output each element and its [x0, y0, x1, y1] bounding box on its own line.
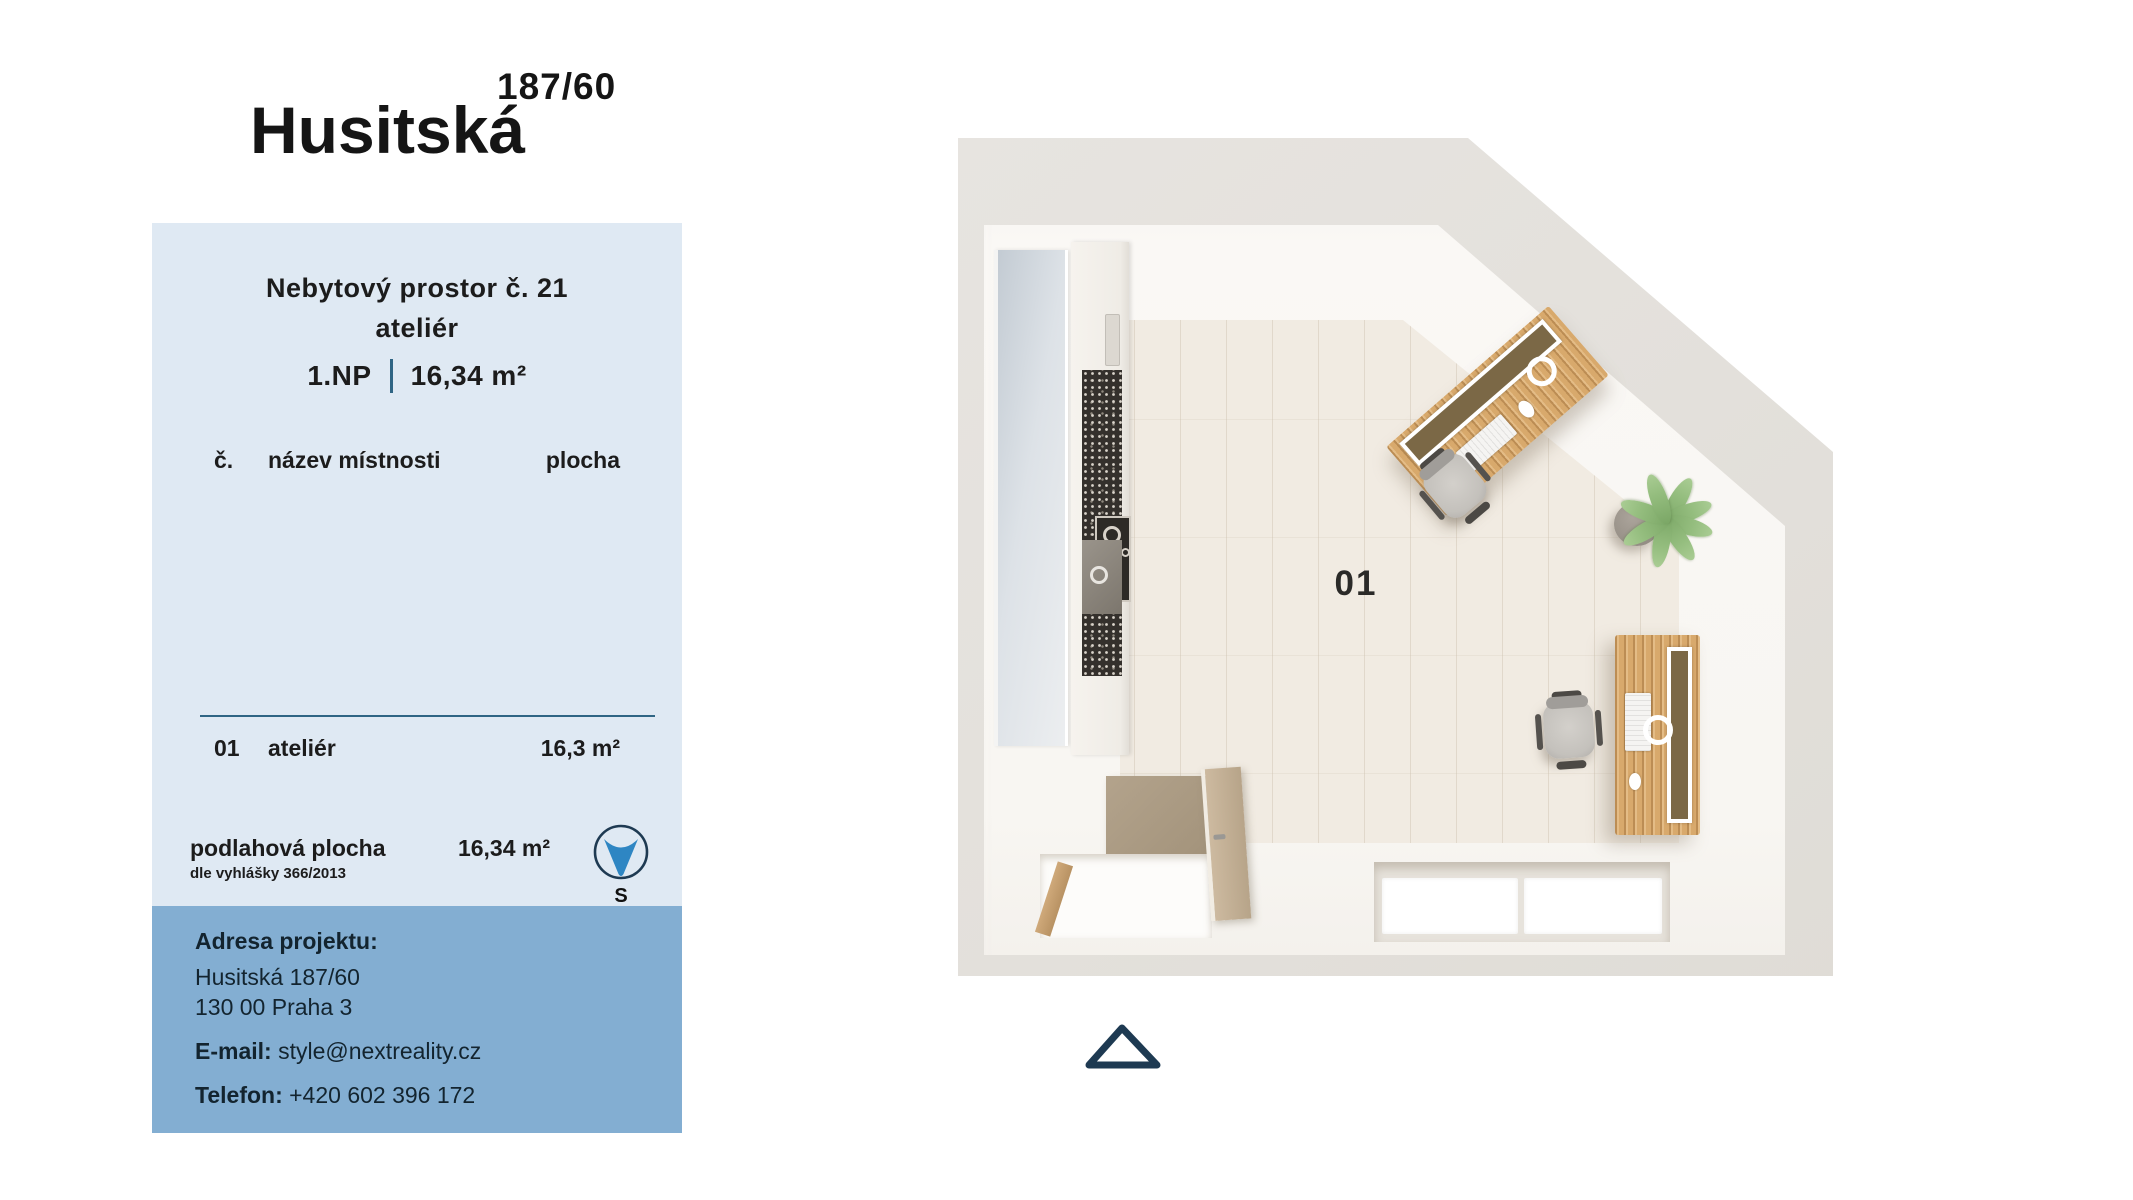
kitchen-sink — [1082, 540, 1122, 614]
room-number-label: 01 — [1316, 564, 1396, 604]
chair-armrest — [1535, 714, 1543, 750]
small-appliance — [1105, 314, 1120, 366]
unit-heading: Nebytový prostor č. 21 ateliér 1.NP 16,3… — [152, 273, 682, 393]
roof-triangle-icon — [1081, 1018, 1165, 1074]
door-threshold — [1035, 861, 1073, 936]
summary-value: 16,34 m² — [402, 835, 550, 862]
email-value: style@nextreality.cz — [278, 1038, 481, 1064]
faucet — [1090, 566, 1108, 584]
unit-info-panel: Nebytový prostor č. 21 ateliér 1.NP 16,3… — [152, 223, 682, 906]
door-handle — [1213, 834, 1225, 840]
window-pane — [1524, 878, 1662, 934]
unit-meta: 1.NP 16,34 m² — [152, 359, 682, 393]
desk — [1615, 635, 1700, 835]
compass-icon: S — [591, 823, 651, 911]
north-arrow-icon — [591, 823, 651, 883]
kitchen-cabinets — [1071, 242, 1129, 755]
floorplan-render: 01 — [950, 120, 1860, 1010]
chair-seat — [1542, 700, 1596, 759]
address-block: Adresa projektu: Husitská 187/60 130 00 … — [195, 930, 481, 1107]
headphones — [1643, 715, 1673, 745]
window-pane — [1382, 878, 1518, 934]
room-table: č. název místnosti plocha 01 ateliér 16,… — [152, 447, 682, 477]
room-number: 01 — [214, 735, 240, 762]
unit-title: Nebytový prostor č. 21 — [152, 273, 682, 304]
address-heading: Adresa projektu: — [195, 930, 481, 953]
page-title: Husitská — [250, 92, 525, 168]
unit-type: ateliér — [152, 313, 682, 344]
header-room-name: název místnosti — [268, 447, 441, 474]
doorway-floor — [1040, 854, 1212, 938]
table-row: 01 ateliér 16,3 m² — [152, 735, 682, 765]
separator-bar — [390, 359, 393, 393]
potted-plant — [1610, 468, 1720, 578]
burner — [1121, 548, 1130, 557]
address-street: Husitská 187/60 — [195, 966, 481, 989]
phone-value: +420 602 396 172 — [289, 1082, 475, 1108]
kitchen-counter — [1082, 614, 1122, 676]
entry-partition — [1106, 776, 1210, 854]
summary-note: dle vyhlášky 366/2013 — [190, 865, 346, 882]
summary-label: podlahová plocha — [190, 835, 386, 862]
room-name: ateliér — [268, 735, 336, 762]
room-area: 16,3 m² — [541, 735, 620, 762]
phone-label: Telefon: — [195, 1082, 283, 1108]
window-recess — [1374, 862, 1670, 942]
address-city: 130 00 Praha 3 — [195, 996, 481, 1019]
unit-floor: 1.NP — [307, 360, 371, 392]
floorplan-brochure: 187/60 Husitská Nebytový prostor č. 21 a… — [0, 0, 2133, 1200]
office-chair — [1536, 694, 1603, 766]
mouse — [1515, 398, 1537, 421]
table-rule — [200, 715, 655, 717]
header-number: č. — [214, 447, 233, 474]
address-panel: Adresa projektu: Husitská 187/60 130 00 … — [152, 906, 682, 1133]
phone-row: Telefon: +420 602 396 172 — [195, 1084, 481, 1107]
kitchen-counter — [1082, 370, 1122, 540]
unit-area: 16,34 m² — [411, 360, 527, 392]
room-table-header: č. název místnosti plocha — [152, 447, 682, 477]
mouse — [1629, 773, 1641, 790]
glass-panel — [994, 250, 1068, 746]
email-row: E-mail: style@nextreality.cz — [195, 1040, 481, 1063]
compass-letter: S — [591, 885, 651, 908]
email-label: E-mail: — [195, 1038, 272, 1064]
header-area: plocha — [546, 447, 620, 474]
